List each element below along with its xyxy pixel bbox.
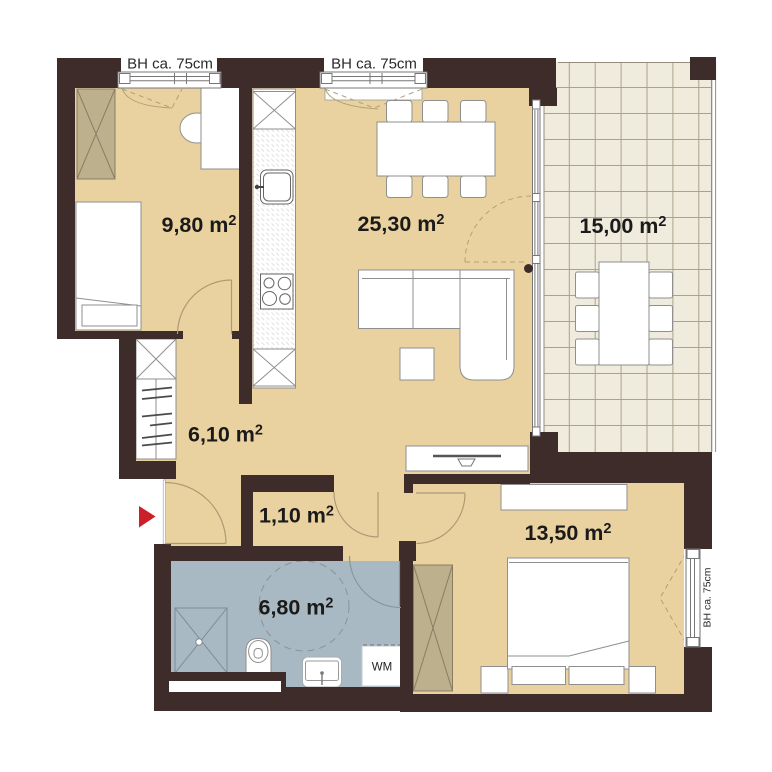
svg-text:BH ca. 75cm: BH ca. 75cm	[127, 56, 213, 73]
svg-text:9,80 m2: 9,80 m2	[161, 213, 236, 237]
svg-text:BH ca. 75cm: BH ca. 75cm	[331, 56, 417, 73]
svg-text:15,00 m2: 15,00 m2	[580, 214, 667, 238]
svg-text:6,80 m2: 6,80 m2	[258, 596, 333, 620]
svg-text:WM: WM	[372, 662, 392, 674]
svg-text:1,10 m2: 1,10 m2	[259, 504, 334, 528]
svg-text:25,30 m2: 25,30 m2	[358, 212, 445, 236]
svg-text:BH ca. 75cm: BH ca. 75cm	[702, 567, 714, 627]
svg-text:6,10 m2: 6,10 m2	[188, 423, 263, 447]
svg-text:13,50 m2: 13,50 m2	[525, 521, 612, 545]
